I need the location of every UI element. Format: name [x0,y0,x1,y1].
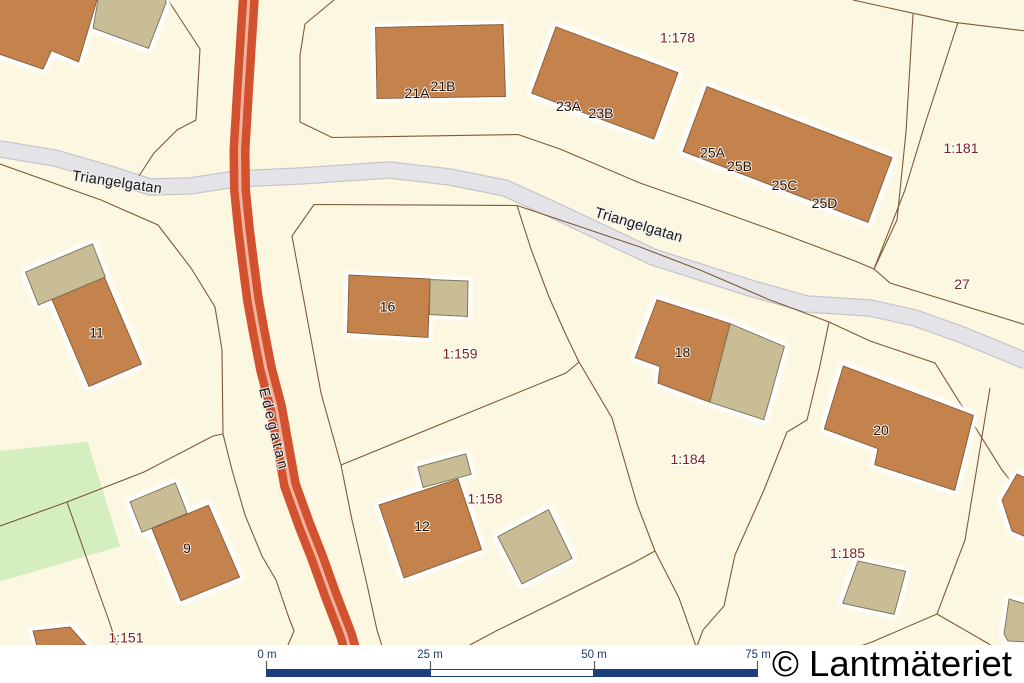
svg-text:21A: 21A [405,85,431,101]
svg-text:18: 18 [675,344,691,360]
svg-text:1:178: 1:178 [660,30,695,46]
svg-text:25B: 25B [727,158,752,174]
svg-text:12: 12 [414,518,430,534]
svg-text:1:159: 1:159 [442,346,477,362]
svg-text:20: 20 [873,422,889,438]
svg-text:75 m: 75 m [745,649,771,661]
svg-text:© Lantmäteriet: © Lantmäteriet [772,643,1012,683]
svg-text:21B: 21B [431,78,456,94]
svg-text:9: 9 [183,540,191,556]
svg-text:25 m: 25 m [417,649,443,661]
svg-text:23B: 23B [589,105,614,121]
svg-text:0 m: 0 m [257,649,276,661]
svg-text:16: 16 [380,299,396,315]
svg-text:23A: 23A [556,98,582,114]
svg-text:25C: 25C [772,177,798,193]
svg-text:27: 27 [954,276,970,292]
svg-text:50 m: 50 m [581,649,607,661]
svg-text:1:184: 1:184 [670,451,705,467]
svg-text:1:185: 1:185 [830,545,865,561]
svg-text:1:181: 1:181 [943,140,978,156]
svg-text:25A: 25A [700,145,726,161]
svg-text:1:151: 1:151 [108,630,143,646]
svg-text:1:158: 1:158 [467,491,502,507]
svg-text:11: 11 [89,325,104,341]
svg-text:25D: 25D [812,195,838,211]
